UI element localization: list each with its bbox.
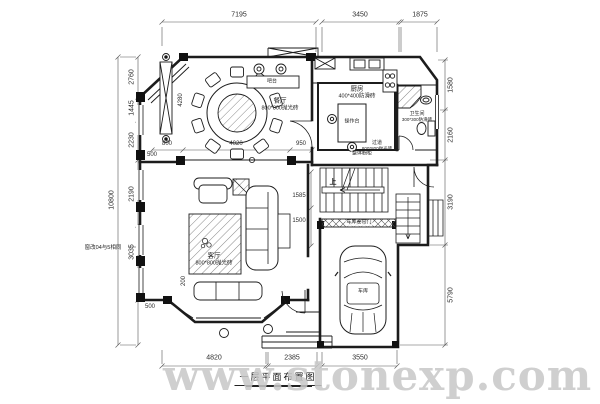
watermark-text: www.stonexp.com (163, 351, 592, 400)
dim-inner-800: 800 (162, 141, 172, 147)
dim-top-1: 7195 (231, 12, 247, 19)
stairs-up-label: 上 (330, 177, 337, 187)
dim-inner-1500: 1500 (292, 218, 305, 224)
dim-inner-200: 200 (181, 276, 187, 286)
dim-right-2160: 2160 (448, 127, 455, 143)
cabinet-note: 整体橱柜 (351, 151, 373, 157)
floor-plan-drawing (0, 0, 600, 404)
dim-inner-4280: 4280 (178, 93, 184, 106)
room-label-living: 客厅 800*800抛光砖 (196, 253, 233, 268)
dim-right-1580: 1580 (448, 77, 455, 93)
dim-left-10800: 10800 (109, 190, 116, 209)
dim-left-1445: 1445 (129, 100, 136, 116)
room-label-kitchen: 厨房 400*400防滑砖 (339, 86, 376, 101)
dim-right-5790: 5790 (448, 287, 455, 303)
dim-right-3190: 3190 (448, 194, 455, 210)
dim-inner-500a: 500 (147, 152, 157, 158)
dim-inner-4020: 4020 (229, 141, 242, 147)
kitchen-island (328, 104, 367, 152)
garage-label: 车库 (357, 289, 369, 295)
kitchen-floor: 400*400防滑砖 (339, 94, 376, 101)
bay-window-seat (194, 282, 262, 300)
dim-inner-950: 950 (296, 141, 306, 147)
sofa (246, 186, 290, 270)
living-floor: 800*800抛光砖 (196, 261, 233, 268)
dining-floor: 800*800抛光砖 (262, 106, 299, 113)
armchair (194, 178, 232, 203)
living-name: 客厅 (196, 253, 233, 261)
dining-name: 餐厅 (262, 98, 299, 106)
window-note: 窗改04与5相同 (85, 243, 122, 251)
dim-left-2190: 2190 (129, 186, 136, 202)
dining-cabinet (160, 54, 172, 143)
staircase (320, 168, 443, 243)
dim-inner-500b: 500 (145, 304, 155, 310)
dim-left-2230: 2230 (129, 132, 136, 148)
room-label-bath: 卫生间 300*300防滑砖 (402, 112, 432, 122)
dim-left-3035: 3035 (129, 244, 136, 260)
garage-door-label: 车库卷帘门 (345, 220, 372, 226)
kitchen-name: 厨房 (339, 86, 376, 94)
bath-floor: 300*300防滑砖 (402, 117, 432, 122)
floor-plan-page: 7195 3450 1875 4820 2385 3550 2760 1445 … (0, 0, 600, 404)
dim-inner-1585: 1585 (292, 193, 305, 199)
island-label: 操作台 (343, 119, 360, 125)
bar-label: 吧台 (266, 79, 278, 85)
living-room-furniture (189, 178, 290, 300)
dim-top-2: 3450 (352, 12, 368, 19)
dim-top-3: 1875 (412, 12, 428, 19)
room-label-dining: 餐厅 800*800抛光砖 (262, 98, 299, 113)
dim-left-2760: 2760 (129, 69, 136, 85)
